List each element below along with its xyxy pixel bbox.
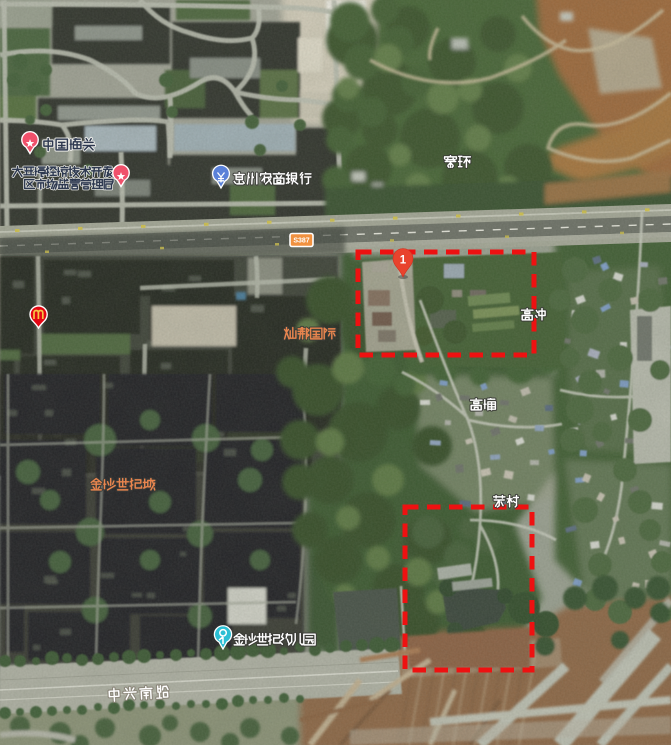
svg-text:1: 1 [400, 255, 407, 267]
svg-text:S387: S387 [293, 238, 309, 245]
